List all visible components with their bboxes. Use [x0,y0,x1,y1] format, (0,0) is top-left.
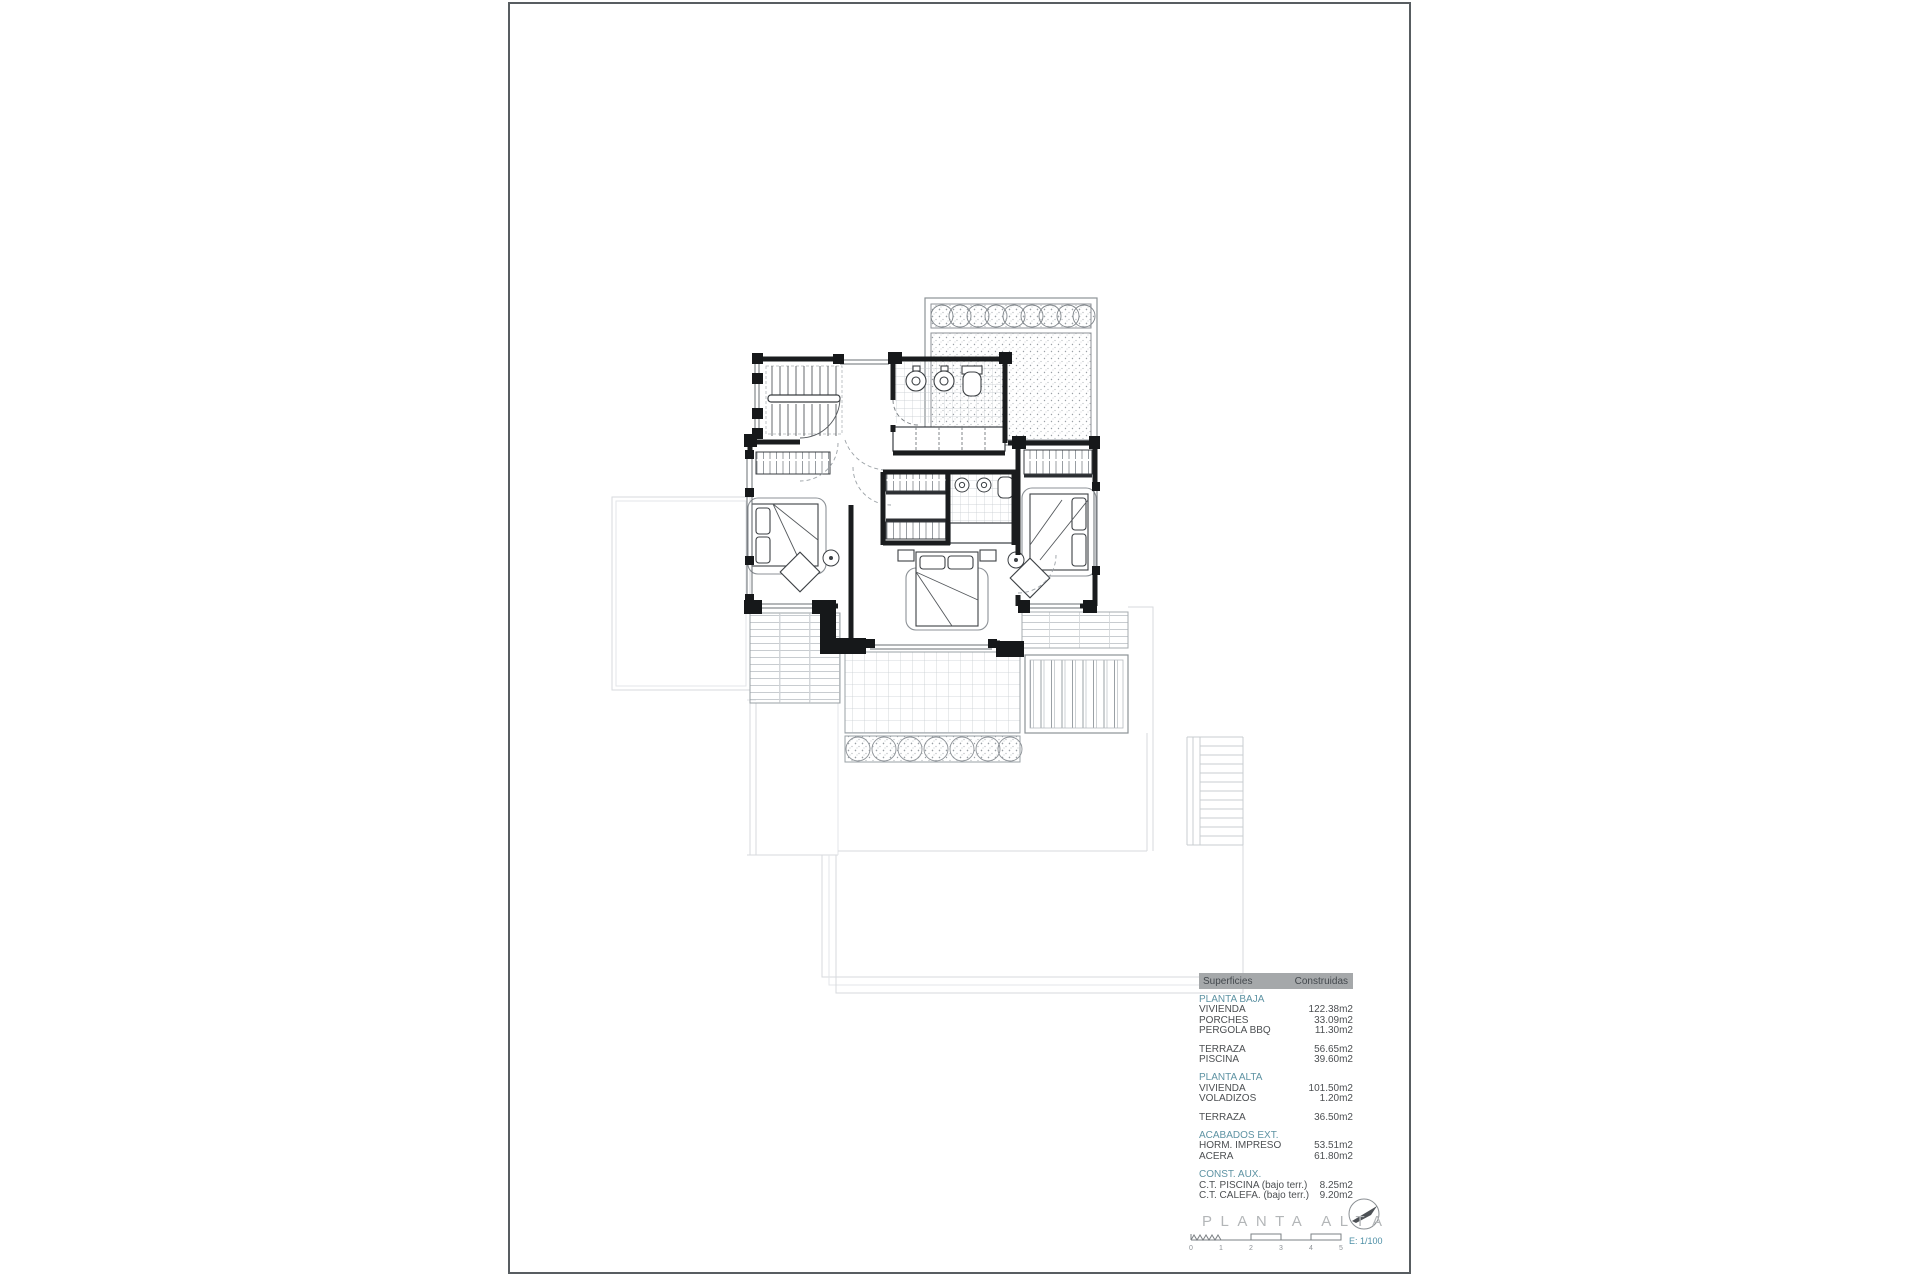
right-deck-and-pergola [1022,612,1128,733]
scale-tick-labels: 012345 [1189,1245,1343,1252]
table-row: VOLADIZOS1.20m2 [1199,1094,1353,1104]
table-row: PERGOLA BBQ11.30m2 [1199,1026,1353,1036]
row-label: TERRAZA [1199,1113,1246,1123]
row-value: 36.50m2 [1314,1113,1353,1123]
header-built: Construidas [1295,976,1348,987]
table-section: TERRAZA56.65m2PISCINA39.60m2 [1199,1045,1353,1066]
exterior-stair-faint [1187,737,1243,845]
bathroom-top [893,362,1005,451]
row-label: PERGOLA BBQ [1199,1026,1271,1036]
table-row: PISCINA39.60m2 [1199,1055,1353,1065]
scale-tick: 2 [1249,1245,1253,1252]
right-bedroom-closet [1024,450,1092,476]
interior-staircase [766,366,842,438]
table-section: CONST. AUX.C.T. PISCINA (bajo terr.)8.25… [1199,1170,1353,1201]
scale-ratio-label: E: 1/100 [1349,1236,1383,1246]
table-row: ACERA61.80m2 [1199,1152,1353,1162]
row-value: 1.20m2 [1320,1094,1353,1104]
scale-bar [1191,1234,1341,1240]
row-label: PISCINA [1199,1055,1239,1065]
left-bedroom-closet [756,452,830,474]
scale-tick: 4 [1309,1245,1313,1252]
table-section: TERRAZA36.50m2 [1199,1113,1353,1123]
scale-tick: 5 [1339,1245,1343,1252]
row-label: C.T. CALEFA. (bajo terr.) [1199,1191,1309,1201]
center-tiled-terrace [845,652,1022,762]
plan-title: PLANTA ALTA [1202,1213,1391,1230]
page-background: 012345 E: 1/100 Superficies Construidas … [0,0,1920,1280]
surfaces-table-body: PLANTA BAJAVIVIENDA122.38m2PORCHES33.09m… [1199,989,1353,1202]
row-label: ACERA [1199,1152,1233,1162]
table-section: PLANTA BAJAVIVIENDA122.38m2PORCHES33.09m… [1199,995,1353,1037]
hedge-bushes [931,305,1095,327]
row-value: 39.60m2 [1314,1055,1353,1065]
row-value: 61.80m2 [1314,1152,1353,1162]
table-row: TERRAZA36.50m2 [1199,1113,1353,1123]
scale-tick: 3 [1279,1245,1283,1252]
table-row: C.T. CALEFA. (bajo terr.)9.20m2 [1199,1191,1353,1201]
scale-tick: 1 [1219,1245,1223,1252]
surfaces-table: Superficies Construidas PLANTA BAJAVIVIE… [1199,973,1353,1202]
table-section: PLANTA ALTAVIVIENDA101.50m2VOLADIZOS1.20… [1199,1073,1353,1104]
scale-tick: 0 [1189,1245,1193,1252]
floor-plan-drawing: 012345 E: 1/100 [0,0,1920,1280]
left-bedroom-bed [748,498,826,574]
surfaces-table-header: Superficies Construidas [1199,973,1353,989]
row-value: 9.20m2 [1320,1191,1353,1201]
row-label: VOLADIZOS [1199,1094,1256,1104]
header-surfaces: Superficies [1203,976,1252,987]
master-bed [898,550,996,630]
row-value: 11.30m2 [1315,1026,1353,1036]
table-section: ACABADOS EXT.HORM. IMPRESO53.51m2ACERA61… [1199,1131,1353,1162]
